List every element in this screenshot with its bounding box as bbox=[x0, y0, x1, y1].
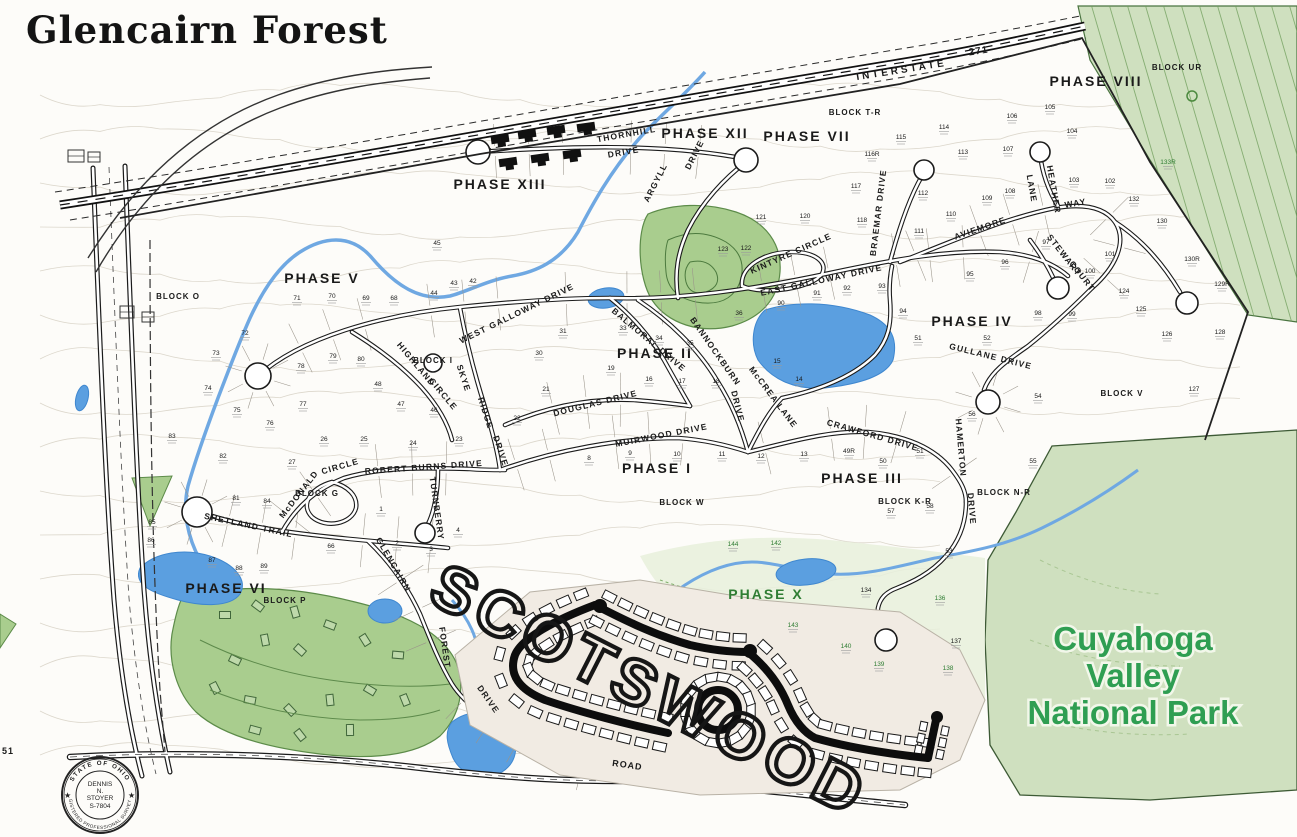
lot-number-label: 2 bbox=[395, 540, 399, 547]
lot-number-label: 130R bbox=[1184, 256, 1200, 263]
lot-number-label: 66 bbox=[327, 543, 335, 550]
lot-number-label: 108 bbox=[1005, 188, 1016, 195]
cul-de-sac-bulb bbox=[415, 523, 435, 543]
lot-number-label: 23 bbox=[455, 436, 463, 443]
lot-number-label: 46 bbox=[430, 407, 438, 414]
lot-number-label: 13 bbox=[800, 451, 808, 458]
lot-number-label: 71 bbox=[293, 295, 301, 302]
lot-number-label: 73 bbox=[212, 350, 220, 357]
lot-number-label: 137 bbox=[951, 638, 962, 645]
lot-number-label: 31 bbox=[559, 328, 567, 335]
cul-de-sac-bulb bbox=[245, 363, 271, 389]
cul-de-sac-bulb bbox=[976, 390, 1000, 414]
scotswood-lot bbox=[936, 749, 945, 759]
lot-number-label: 90 bbox=[777, 300, 785, 307]
lot-number-label: 104 bbox=[1067, 128, 1078, 135]
lot-number-label: 19 bbox=[607, 365, 615, 372]
lot-number-label: 49R bbox=[843, 448, 855, 455]
scotswood-lot bbox=[713, 659, 727, 669]
lot-number-label: 84 bbox=[263, 498, 271, 505]
lot-number-label: 94 bbox=[899, 308, 907, 315]
lot-number-label: 132 bbox=[1129, 196, 1140, 203]
block-label: BLOCK O bbox=[156, 292, 200, 301]
lot-number-label: 68 bbox=[390, 295, 398, 302]
lot-number-label: 101 bbox=[1105, 251, 1116, 258]
phase-label: PHASE III bbox=[821, 470, 903, 486]
lot-number-label: 97 bbox=[1042, 239, 1050, 246]
block-label: BLOCK V bbox=[1101, 389, 1144, 398]
misc-label: 51 bbox=[2, 746, 14, 756]
lot-number-label: 123 bbox=[718, 246, 729, 253]
lot-number-label: 8 bbox=[587, 455, 591, 462]
page-title: Glencairn Forest bbox=[26, 8, 388, 52]
lot-number-label: 54 bbox=[1034, 393, 1042, 400]
lot-number-label: 138 bbox=[943, 665, 954, 672]
lot-number-label: 44 bbox=[430, 290, 438, 297]
lot-number-label: 30 bbox=[535, 350, 543, 357]
scotswood-lot bbox=[699, 629, 713, 640]
lot-number-label: 22 bbox=[513, 415, 521, 422]
block-label: BLOCK P bbox=[264, 596, 307, 605]
lot-number-label: 35 bbox=[686, 340, 694, 347]
park-area-cuyahoga bbox=[985, 430, 1297, 800]
cul-de-sac-bulb bbox=[466, 140, 490, 164]
lot-number-label: 139 bbox=[874, 661, 885, 668]
lot-number-label: 69 bbox=[362, 295, 370, 302]
lot-number-label: 26 bbox=[320, 436, 328, 443]
lot-number-label: 140 bbox=[841, 643, 852, 650]
lot-number-label: 17 bbox=[678, 378, 686, 385]
lot-number-label: 27 bbox=[288, 459, 296, 466]
scotswood-lot bbox=[716, 632, 730, 642]
pond bbox=[368, 599, 402, 623]
lot-number-label: 134 bbox=[861, 587, 872, 594]
seal-name-1: DENNIS bbox=[88, 781, 113, 788]
lot-number-label: 85 bbox=[148, 519, 156, 526]
lot-number-label: 133R bbox=[1160, 159, 1176, 166]
lot-number-label: 51 bbox=[914, 335, 922, 342]
lot-number-label: 122 bbox=[741, 245, 752, 252]
lot-number-label: 92 bbox=[843, 285, 851, 292]
lot-number-label: 25 bbox=[360, 436, 368, 443]
lot-number-label: 3 bbox=[429, 546, 433, 553]
lot-number-label: 57 bbox=[887, 508, 895, 515]
lot-number-label: 77 bbox=[299, 401, 307, 408]
scotswood-lot bbox=[852, 728, 866, 739]
lot-number-label: 80 bbox=[357, 356, 365, 363]
lot-number-label: 126 bbox=[1162, 331, 1173, 338]
scotswood-lot bbox=[938, 738, 947, 748]
road-knob bbox=[931, 711, 943, 723]
scotswood-lot bbox=[917, 733, 926, 743]
phase-label: PHASE X bbox=[728, 586, 803, 602]
lot-number-label: 128 bbox=[1215, 329, 1226, 336]
lot-number-label: 42 bbox=[469, 278, 477, 285]
cottage-building bbox=[261, 634, 270, 646]
scotswood-lot bbox=[901, 766, 915, 776]
lot-number-label: 96 bbox=[1001, 259, 1009, 266]
lot-number-label: 127 bbox=[1189, 386, 1200, 393]
lot-number-label: 114 bbox=[939, 124, 950, 131]
seal-name-2: N. bbox=[97, 788, 104, 795]
lot-number-label: 34 bbox=[655, 335, 663, 342]
block-label: BLOCK UR bbox=[1152, 63, 1202, 72]
lot-number-label: 47 bbox=[397, 401, 405, 408]
lot-number-label: 10 bbox=[673, 451, 681, 458]
cul-de-sac-bulb bbox=[1047, 277, 1069, 299]
lot-number-label: 55 bbox=[1029, 458, 1037, 465]
road-knob bbox=[593, 599, 607, 613]
cottage-building bbox=[346, 724, 353, 735]
phase-label: PHASE XIII bbox=[453, 176, 546, 192]
phase-label: PHASE VIII bbox=[1049, 73, 1142, 89]
lot-number-label: 78 bbox=[297, 363, 305, 370]
phase-label: PHASE V bbox=[284, 270, 359, 286]
cottage-building bbox=[326, 694, 334, 706]
lot-number-label: 14 bbox=[795, 376, 803, 383]
lot-number-label: 52 bbox=[983, 335, 991, 342]
lot-number-label: 1 bbox=[379, 506, 383, 513]
lot-number-label: 111 bbox=[914, 228, 924, 235]
lot-number-label: 124 bbox=[1119, 288, 1130, 295]
seal-star-right: ★ bbox=[128, 791, 135, 800]
lot-number-label: 116R bbox=[864, 151, 879, 158]
lot-number-label: 45 bbox=[433, 240, 441, 247]
plat-map-page: Glencairn Forest bbox=[0, 0, 1297, 837]
lot-number-label: 113 bbox=[958, 149, 969, 156]
seal-number: S-7804 bbox=[90, 803, 111, 810]
lot-number-label: 36 bbox=[735, 310, 743, 317]
lot-number-label: 11 bbox=[719, 451, 726, 458]
scotswood-lot bbox=[941, 726, 950, 736]
lot-number-label: 86 bbox=[147, 537, 155, 544]
scotswood-lot bbox=[733, 633, 746, 642]
lot-number-label: 4 bbox=[456, 527, 460, 534]
lot-number-label: 88 bbox=[235, 565, 243, 572]
lot-number-label: 75 bbox=[233, 407, 241, 414]
lot-number-label: 143 bbox=[788, 622, 799, 629]
lot-number-label: 70 bbox=[328, 293, 336, 300]
phase-label: PHASE VI bbox=[185, 580, 266, 596]
block-label: BLOCK K-R bbox=[878, 497, 932, 506]
lot-number-label: 43 bbox=[450, 280, 458, 287]
phase-label: PHASE I bbox=[622, 460, 692, 476]
lot-number-label: 99 bbox=[1068, 311, 1076, 318]
lot-number-label: 93 bbox=[878, 283, 886, 290]
lot-number-label: 89 bbox=[260, 563, 268, 570]
lot-number-label: 125 bbox=[1136, 306, 1147, 313]
park-label-line: Valley bbox=[1086, 657, 1180, 694]
lot-number-label: 118 bbox=[857, 217, 868, 224]
cottage-building bbox=[220, 612, 231, 619]
lot-number-label: 33 bbox=[619, 325, 627, 332]
pond-large bbox=[753, 304, 894, 388]
lot-number-label: 76 bbox=[266, 420, 274, 427]
scotswood-lot bbox=[887, 734, 901, 744]
park-label-line: Cuyahoga bbox=[1053, 620, 1213, 657]
scotswood-lot bbox=[883, 763, 897, 773]
map-canvas: SCOTSWOOD PHASE IPHASE IIPHASE IIIPHASE … bbox=[0, 0, 1297, 837]
lot-number-label: 91 bbox=[813, 290, 821, 297]
block-label: BLOCK N-R bbox=[977, 488, 1031, 497]
road-knob bbox=[743, 644, 757, 658]
scotswood-lot bbox=[869, 731, 883, 742]
lot-number-label: 95 bbox=[966, 271, 974, 278]
lot-number-label: 83 bbox=[168, 433, 176, 440]
lot-number-label: 72 bbox=[241, 330, 249, 337]
cul-de-sac-bulb bbox=[1176, 292, 1198, 314]
phase-label: PHASE IV bbox=[931, 313, 1012, 329]
block-label: BLOCK W bbox=[659, 498, 704, 507]
lot-number-label: 117 bbox=[851, 183, 862, 190]
scotswood-lot bbox=[919, 721, 928, 731]
cottage-building bbox=[244, 696, 256, 705]
lot-number-label: 87 bbox=[208, 557, 216, 564]
lot-number-label: 142 bbox=[771, 540, 782, 547]
seal-star-left: ★ bbox=[64, 791, 71, 800]
lot-number-label: 21 bbox=[542, 386, 550, 393]
lot-number-label: 110 bbox=[946, 211, 957, 218]
park-label-line: National Park bbox=[1028, 694, 1240, 731]
cul-de-sac-bulb bbox=[914, 160, 934, 180]
lot-number-label: 136 bbox=[935, 595, 946, 602]
block-label: BLOCK T-R bbox=[829, 108, 882, 117]
lot-number-label: 9 bbox=[628, 450, 632, 457]
lot-number-label: 56 bbox=[968, 411, 976, 418]
lot-number-label: 107 bbox=[1003, 146, 1014, 153]
cul-de-sac-bulb bbox=[1030, 142, 1050, 162]
lot-number-label: 82 bbox=[219, 453, 227, 460]
lot-number-label: 51 bbox=[916, 448, 924, 455]
cottage-building bbox=[392, 651, 404, 659]
lot-number-label: 58 bbox=[926, 503, 934, 510]
lot-number-label: 109 bbox=[982, 195, 993, 202]
lot-number-label: 12 bbox=[757, 453, 765, 460]
lot-number-label: 79 bbox=[329, 353, 337, 360]
lot-number-label: 16 bbox=[645, 376, 653, 383]
lot-number-label: 103 bbox=[1069, 177, 1080, 184]
lot-number-label: 18 bbox=[712, 378, 720, 385]
lot-number-label: 48 bbox=[374, 381, 382, 388]
phase-label: PHASE VII bbox=[763, 128, 850, 144]
lot-number-label: 112 bbox=[918, 190, 929, 197]
cul-de-sac-bulb bbox=[734, 148, 758, 172]
scotswood-lot bbox=[694, 656, 708, 667]
lot-number-label: 50 bbox=[879, 458, 887, 465]
scotswood-lot bbox=[918, 768, 932, 778]
lot-number-label: 24 bbox=[409, 440, 417, 447]
seal-name-3: STOYER bbox=[87, 795, 114, 802]
lot-number-label: 129R bbox=[1214, 281, 1230, 288]
lot-number-label: 15 bbox=[773, 358, 781, 365]
lot-number-label: 53 bbox=[945, 548, 953, 555]
lot-number-label: 105 bbox=[1045, 104, 1056, 111]
lot-number-label: 115 bbox=[896, 134, 907, 141]
cul-de-sac-bulb bbox=[875, 629, 897, 651]
lot-number-label: 106 bbox=[1007, 113, 1018, 120]
lot-number-label: 98 bbox=[1034, 310, 1042, 317]
phase-label: PHASE XII bbox=[661, 125, 748, 141]
lot-number-label: 100 bbox=[1085, 268, 1096, 275]
lot-number-label: 130 bbox=[1157, 218, 1168, 225]
lot-number-label: 120 bbox=[800, 213, 811, 220]
lot-number-label: 74 bbox=[204, 385, 212, 392]
lot-number-label: 81 bbox=[232, 495, 240, 502]
lot-number-label: 144 bbox=[728, 541, 739, 548]
lot-number-label: 121 bbox=[756, 214, 767, 221]
lot-number-label: 102 bbox=[1105, 178, 1116, 185]
